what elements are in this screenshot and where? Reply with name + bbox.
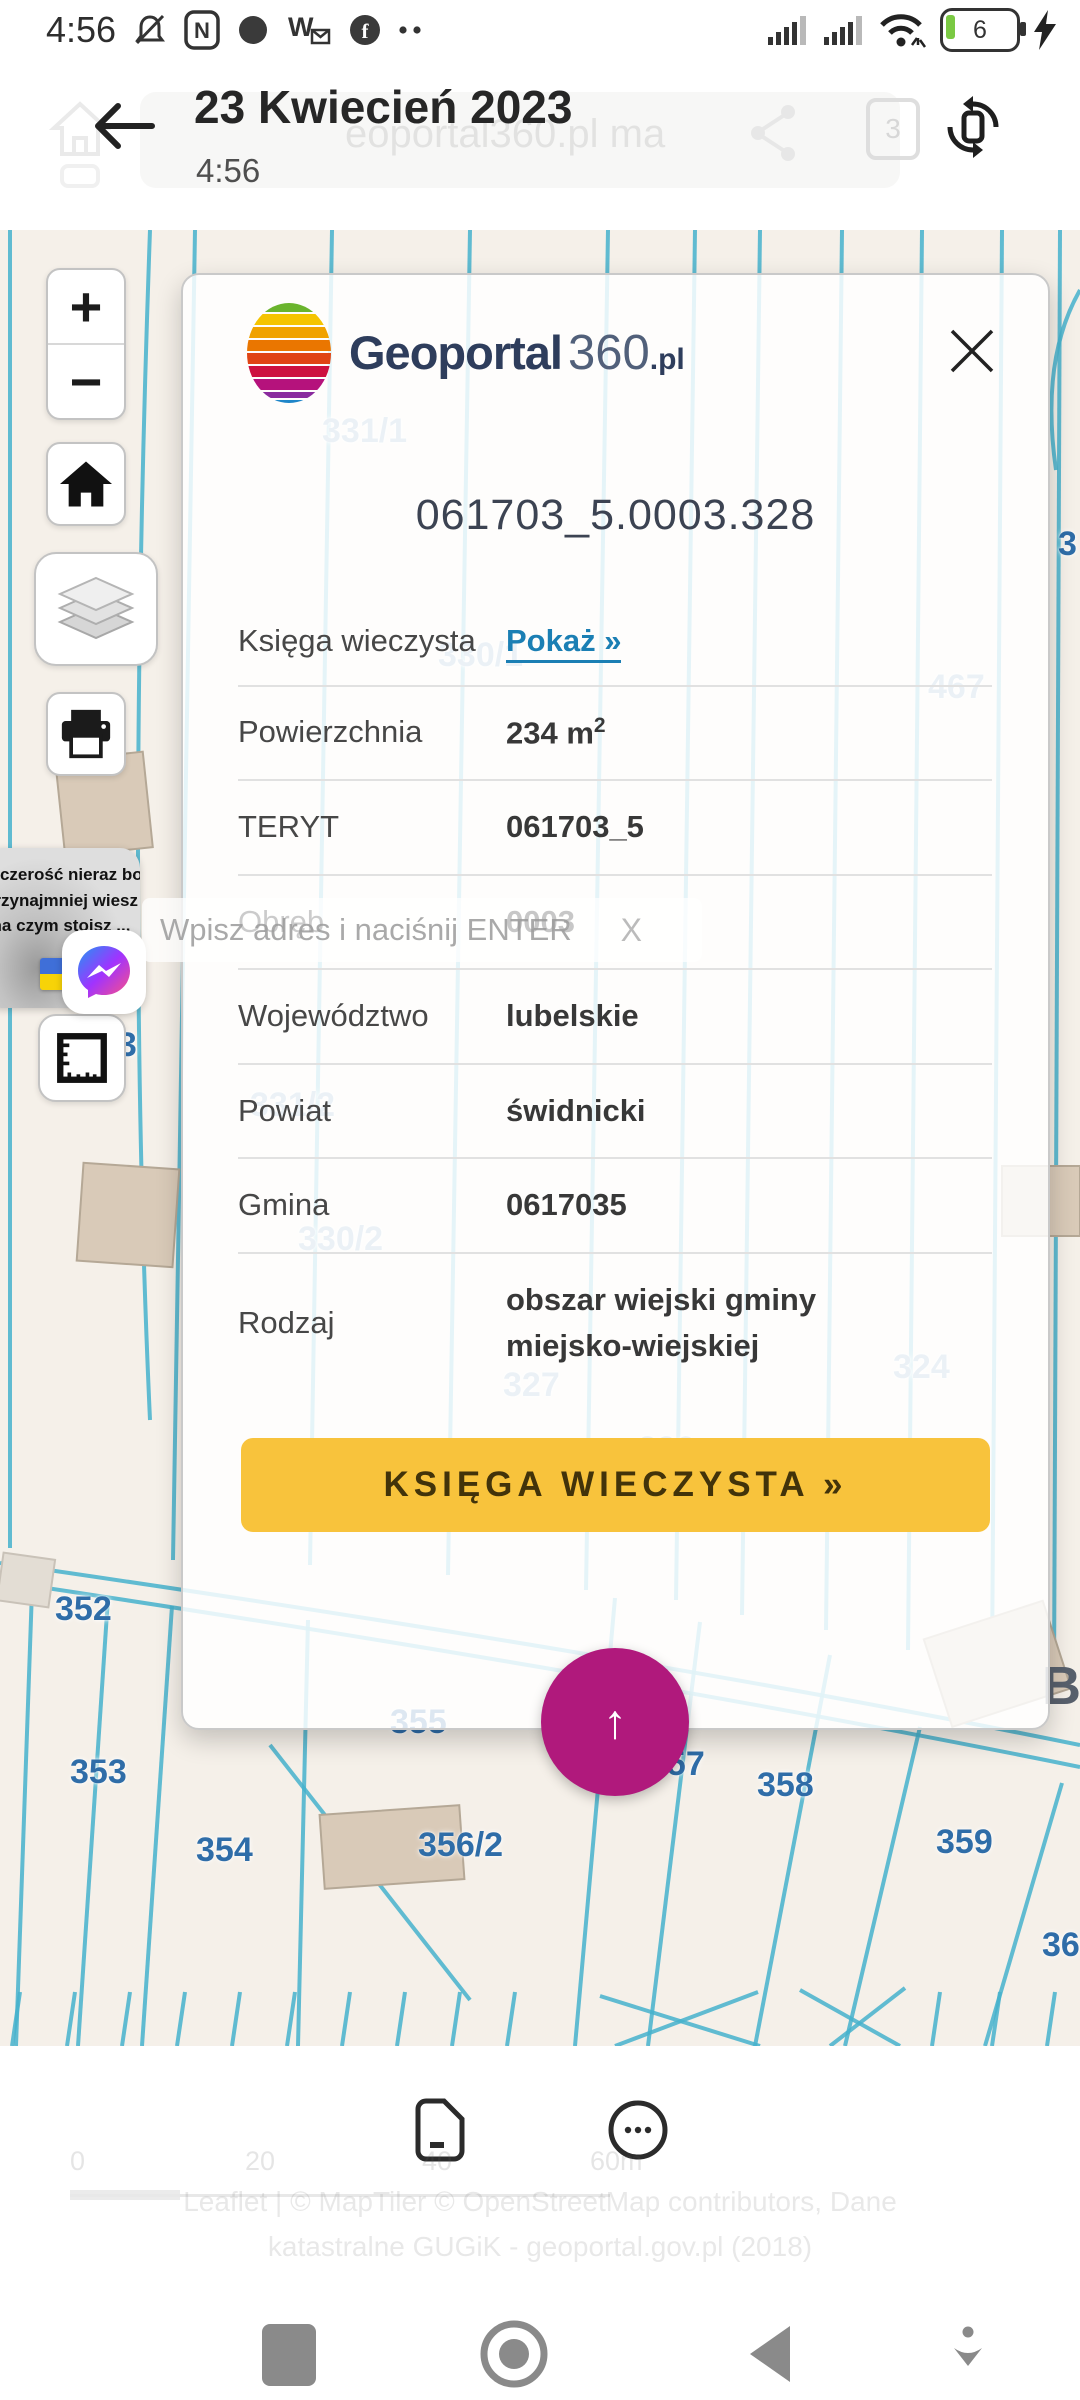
- bottom-area: 0 20 40 60m Leaflet | © MapTiler © OpenS…: [0, 2046, 1080, 2400]
- home-nav-button[interactable]: [478, 2318, 550, 2390]
- ksiega-wieczysta-button[interactable]: KSIĘGA WIECZYSTA »: [241, 1438, 990, 1532]
- scroll-up-fab[interactable]: ↑: [541, 1648, 689, 1796]
- battery-percent: 6: [973, 16, 987, 45]
- geoportal-brand-text: Geoportal360.pl: [349, 325, 685, 381]
- status-bar: 4:56 N W f: [0, 0, 1080, 60]
- svg-text:f: f: [362, 19, 370, 43]
- zoom-in-button[interactable]: +: [48, 270, 124, 345]
- status-time: 4:56: [46, 9, 116, 51]
- back-nav-button[interactable]: [742, 2322, 798, 2386]
- rotate-icon[interactable]: [938, 92, 1008, 162]
- pokaz-link[interactable]: Pokaż »: [506, 623, 621, 663]
- table-row: Województwo lubelskie: [238, 970, 992, 1065]
- map-home-button[interactable]: [46, 442, 126, 526]
- zoom-control: + −: [46, 268, 126, 420]
- back-arrow-icon[interactable]: [86, 90, 162, 162]
- parcel-label-353: 353: [70, 1753, 127, 1792]
- recents-button[interactable]: [262, 2324, 316, 2386]
- layers-icon: [54, 572, 138, 646]
- photo-date-title: 23 Kwiecień 2023: [194, 80, 572, 134]
- parcel-info-dialog: Geoportal360.pl 061703_5.0003.328 Księga…: [181, 273, 1050, 1730]
- geoportal-brand: Geoportal360.pl: [245, 301, 685, 405]
- geoportal-logo-icon: [245, 301, 333, 405]
- parcel-label-352: 352: [55, 1590, 112, 1629]
- svg-text:W: W: [288, 12, 314, 42]
- parcel-label-354: 354: [196, 1831, 253, 1870]
- parcel-label-360: 360: [1042, 1926, 1080, 1965]
- ghost-map-attribution-1: Leaflet | © MapTiler © OpenStreetMap con…: [0, 2186, 1080, 2218]
- parcel-label-358: 358: [757, 1766, 814, 1805]
- table-row: Księga wieczysta Pokaż »: [238, 598, 992, 687]
- battery-icon: 6: [940, 8, 1020, 52]
- dnd-icon: [236, 13, 270, 47]
- facebook-icon: f: [348, 13, 382, 47]
- parcel-id: 061703_5.0003.328: [183, 491, 1048, 540]
- parcel-attributes-table: Księga wieczysta Pokaż » Powierzchnia 23…: [238, 598, 992, 1532]
- map-layers-button[interactable]: [34, 552, 158, 666]
- table-row: Powiat świdnicki: [238, 1065, 992, 1160]
- messenger-button[interactable]: [62, 930, 146, 1014]
- zoom-out-button[interactable]: −: [48, 345, 124, 418]
- hide-nav-button[interactable]: [946, 2322, 990, 2380]
- more-notifications-icon: [398, 25, 428, 35]
- photo-time-subtitle: 4:56: [196, 152, 260, 190]
- wifi-icon: [878, 9, 928, 51]
- mute-icon: [132, 12, 168, 48]
- search-placeholder: Wpisz adres i naciśnij ENTER: [160, 912, 572, 948]
- charging-bolt-icon: [1032, 10, 1058, 50]
- android-nav-bar: [0, 2300, 1080, 2400]
- messenger-icon: [74, 942, 134, 1002]
- battery-charge-level: [946, 15, 955, 39]
- parcel-label-359: 359: [936, 1823, 993, 1862]
- signal-sim2-icon: [822, 11, 866, 49]
- ghost-badge-count: 3: [866, 98, 920, 160]
- map-measure-button[interactable]: [38, 1014, 126, 1102]
- ghost-share-icon[interactable]: [748, 102, 798, 164]
- table-row: Rodzaj obszar wiejski gminy miejsko-wiej…: [238, 1254, 992, 1393]
- search-clear-icon[interactable]: X: [621, 912, 642, 949]
- table-row: Gmina 0617035: [238, 1159, 992, 1254]
- signal-sim1-icon: [766, 11, 810, 49]
- wp-mail-icon: W: [286, 10, 332, 50]
- screen: 331/13330/1467333331/2330/23273243263523…: [0, 0, 1080, 2400]
- home-icon: [58, 458, 114, 510]
- svg-text:N: N: [194, 18, 210, 43]
- gallery-header: eoportal360.pl ma 23 Kwiecień 2023 4:56 …: [0, 60, 1080, 230]
- table-row: Powierzchnia 234 m2: [238, 687, 992, 782]
- print-icon: [58, 708, 114, 760]
- table-row: TERYT 061703_5: [238, 781, 992, 876]
- address-search-input[interactable]: Wpisz adres i naciśnij ENTER X: [142, 898, 702, 962]
- ghost-map-attribution-2: katastralne GUGiK - geoportal.gov.pl (20…: [0, 2231, 1080, 2263]
- up-arrow-icon: ↑: [603, 1695, 627, 1750]
- map-print-button[interactable]: [46, 692, 126, 776]
- nfc-icon: N: [184, 10, 220, 50]
- dialog-header: Geoportal360.pl: [183, 275, 1048, 425]
- measure-ruler-icon: [53, 1029, 111, 1087]
- parcel-label-3: 3: [1058, 525, 1077, 564]
- dialog-close-icon[interactable]: [948, 327, 996, 375]
- parcel-label-356/2: 356/2: [418, 1826, 503, 1865]
